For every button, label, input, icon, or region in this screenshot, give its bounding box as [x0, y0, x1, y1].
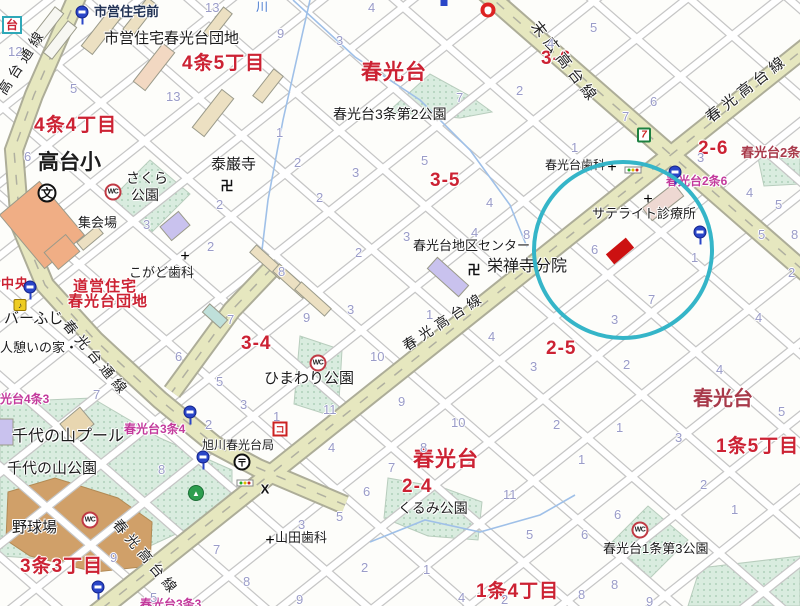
- map-canvas[interactable]: 台市営住宅前市営住宅春光台団地4条5丁目4条4丁目春光台川春光台3条第2公園3-…: [0, 0, 800, 606]
- map-annotation-layer: [0, 0, 800, 606]
- highlighted-building: [606, 238, 634, 265]
